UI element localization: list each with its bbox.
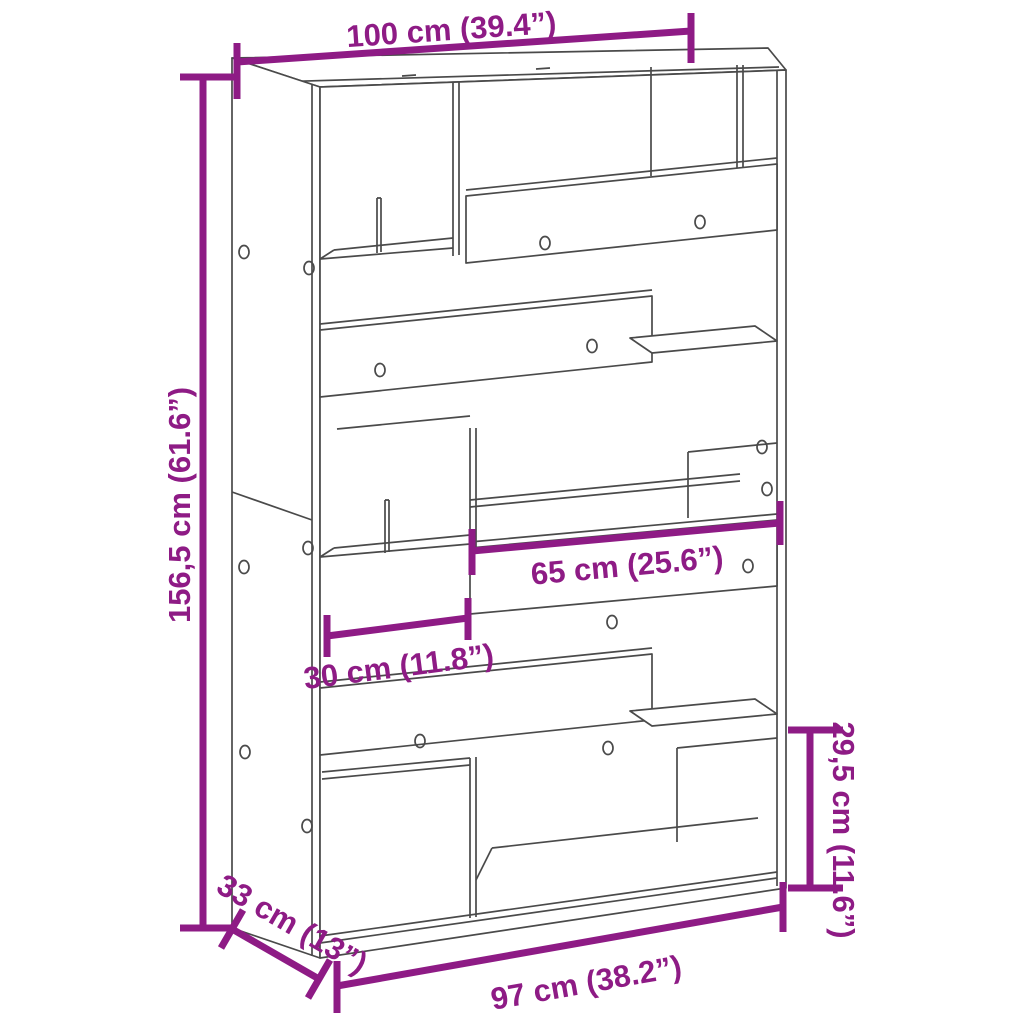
- dimension-label-width-bottom: 97 cm (38.2”): [488, 949, 684, 1017]
- dimension-label-width-top: 100 cm (39.4”): [345, 5, 557, 54]
- diagram-svg: 100 cm (39.4”) 156,5 cm (61.6”) 65 cm (2…: [0, 0, 1024, 1024]
- dimension-diagram: 100 cm (39.4”) 156,5 cm (61.6”) 65 cm (2…: [0, 0, 1024, 1024]
- dimension-label-compartment-height: 29,5 cm (11.6”): [826, 721, 861, 938]
- dimension-label-height: 156,5 cm (61.6”): [162, 387, 197, 623]
- furniture-drawing: [232, 48, 786, 958]
